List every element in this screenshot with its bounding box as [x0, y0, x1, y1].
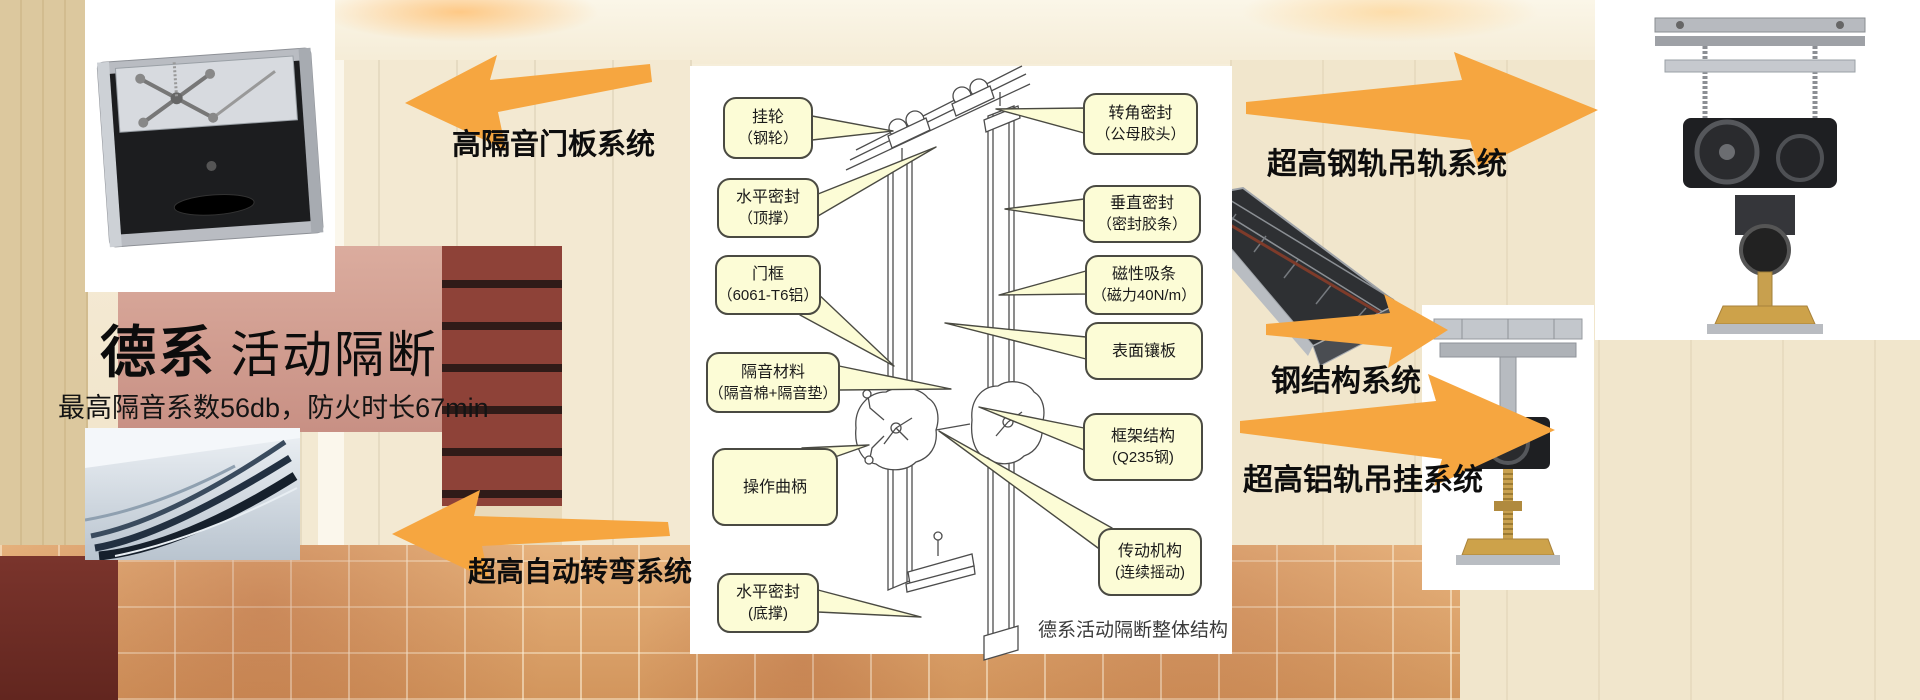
- photo-steel-rail-hanger: [1595, 0, 1920, 340]
- carpet-corner: [0, 556, 118, 700]
- steel-hanger-illustration: [1595, 0, 1920, 340]
- photo-door-panel-system: [85, 0, 335, 292]
- product-poster: 挂轮 （钢轮） 水平密封 （顶撑） 门框 （6061-T6铝） 隔音材料 （隔音…: [0, 0, 1920, 700]
- product-title: 德系 活动隔断: [100, 308, 438, 389]
- callout-horizontal-seal-bottom: 水平密封 (底撑): [717, 573, 819, 633]
- callout-vertical-seal: 垂直密封 （密封胶条）: [1083, 185, 1201, 243]
- diagram-caption: 德系活动隔断整体结构: [1038, 615, 1228, 642]
- maroon-column-base: [442, 506, 562, 548]
- callout-door-frame: 门框 （6061-T6铝）: [715, 255, 821, 315]
- label-steel-structure-system: 钢结构系统: [1271, 356, 1421, 400]
- product-subtitle: 最高隔音系数56db，防火时长67min: [58, 386, 489, 425]
- callout-horizontal-seal-top: 水平密封 （顶撑）: [717, 178, 819, 238]
- callout-corner-seal: 转角密封 （公母胶头）: [1083, 93, 1198, 155]
- callout-operating-crank: 操作曲柄: [712, 448, 838, 526]
- aluminum-hanger-illustration: [1422, 305, 1594, 590]
- callout-hanging-wheel: 挂轮 （钢轮）: [723, 97, 813, 159]
- label-alu-track-system: 超高铝轨吊挂系统: [1243, 455, 1483, 499]
- label-auto-turn-system: 超高自动转弯系统: [468, 550, 692, 590]
- callout-frame-structure: 框架结构 (Q235钢): [1083, 413, 1203, 481]
- callout-sound-insulation: 隔音材料 （隔音棉+隔音垫）: [706, 352, 840, 413]
- ceiling-light-glow: [1240, 0, 1540, 42]
- photo-curved-track-system: [85, 428, 300, 560]
- callout-transmission: 传动机构 (连续摇动): [1098, 528, 1202, 596]
- photo-aluminum-rail-hanger: [1422, 305, 1594, 590]
- label-steel-track-system: 超高钢轨吊轨系统: [1267, 139, 1507, 183]
- curved-track-illustration: [85, 428, 300, 560]
- label-door-panel-system: 高隔音门板系统: [452, 121, 655, 163]
- product-title-brand: 德系: [100, 308, 216, 389]
- door-panel-illustration: [85, 0, 335, 292]
- product-title-rest: 活动隔断: [230, 315, 438, 387]
- ceiling-light-glow: [320, 0, 600, 42]
- callout-magnetic-strip: 磁性吸条 （磁力40N/m）: [1085, 255, 1203, 315]
- maroon-column: [442, 246, 562, 508]
- callout-surface-panel: 表面镶板: [1085, 322, 1203, 380]
